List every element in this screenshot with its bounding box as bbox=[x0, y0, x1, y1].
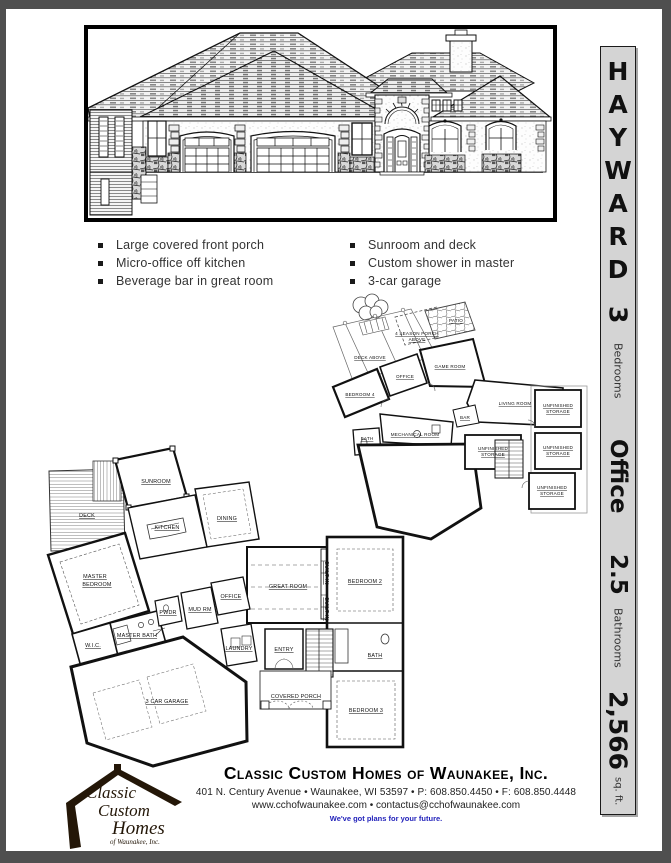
stairs-main bbox=[306, 629, 333, 677]
square-bullet-icon bbox=[350, 261, 355, 266]
dining-room bbox=[195, 482, 259, 547]
company-name: Classic Custom Homes of Waunakee, Inc. bbox=[176, 764, 596, 783]
front-elevation-frame bbox=[84, 25, 557, 222]
garage-door-1 bbox=[180, 132, 234, 172]
room-label: SUNROOM bbox=[141, 479, 171, 485]
feature-item: Micro-office off kitchen bbox=[98, 254, 273, 272]
keystone bbox=[398, 97, 406, 103]
room-label: BATH bbox=[368, 653, 383, 659]
feature-item: 3-car garage bbox=[350, 272, 514, 290]
brochure-page-background: { "sidebar": { "plan_letters": ["H","A",… bbox=[0, 0, 671, 863]
main-level-floor-plan: SUNROOM DECK KITCHEN DINING MASTER BEDRO… bbox=[35, 425, 405, 785]
left-window bbox=[146, 121, 168, 172]
room-label: DINING bbox=[217, 516, 237, 522]
arched-window-2 bbox=[482, 118, 521, 172]
tree-symbol bbox=[353, 294, 388, 320]
room-label: OFFICE bbox=[221, 594, 242, 600]
document-page: Large covered front porch Micro-office o… bbox=[6, 9, 662, 851]
feature-item: Beverage bar in great room bbox=[98, 272, 273, 290]
room-label: UNFINISHED bbox=[543, 403, 574, 408]
room-label: MASTER bbox=[83, 574, 107, 580]
room-label: BEDROOM 4 bbox=[345, 392, 375, 397]
bedrooms-count: 3 bbox=[604, 306, 633, 323]
room-label: BEDROOM bbox=[82, 582, 112, 588]
bathrooms-count: 2.5 bbox=[605, 554, 631, 595]
room-label: STORAGE bbox=[481, 452, 505, 457]
bathrooms-label: Bathrooms bbox=[612, 608, 625, 668]
room-label: LIVING ROOM bbox=[499, 401, 532, 406]
porch-column bbox=[323, 701, 331, 709]
room-label: ABOVE bbox=[409, 337, 426, 342]
entry-side-window bbox=[350, 123, 374, 172]
room-label: STORAGE bbox=[546, 451, 570, 456]
plan-title-sidebar: H A Y W A R D 3 Bedrooms Office 2.5 Bath… bbox=[600, 46, 636, 815]
feature-text: Sunroom and deck bbox=[368, 238, 476, 252]
room-label: PATIO bbox=[449, 318, 463, 323]
room-label: UNFINISHED bbox=[478, 446, 509, 451]
room-label: DECK bbox=[79, 513, 95, 519]
room-label: BAR bbox=[460, 415, 471, 420]
sqft-label: sq. ft. bbox=[613, 777, 624, 805]
plan-name-letter: A bbox=[601, 191, 635, 216]
room-label: MASTER BATH bbox=[117, 633, 157, 639]
front-elevation-drawing bbox=[88, 29, 553, 218]
room-label: BEDROOM 2 bbox=[348, 579, 382, 585]
plan-name-letter: R bbox=[601, 224, 635, 249]
square-bullet-icon bbox=[98, 261, 103, 266]
entry-tower bbox=[375, 95, 429, 175]
footer-contact-block: Classic Custom Homes of Waunakee, Inc. 4… bbox=[176, 764, 596, 823]
plan-name-letter: Y bbox=[601, 125, 635, 150]
feature-text: Large covered front porch bbox=[116, 238, 264, 252]
room-label: ENTRY bbox=[274, 647, 293, 653]
feature-column-right: Sunroom and deck Custom shower in master… bbox=[350, 236, 514, 290]
feature-text: Custom shower in master bbox=[368, 256, 514, 270]
plan-name-letter: W bbox=[601, 158, 635, 183]
room-label: OFFICE bbox=[396, 374, 414, 379]
chimney bbox=[446, 30, 476, 72]
square-bullet-icon bbox=[350, 243, 355, 248]
room-label: LAUNDRY bbox=[225, 646, 252, 652]
plan-name-letter: H bbox=[601, 59, 635, 84]
basement-window bbox=[101, 179, 109, 205]
room-label: COVERED PORCH bbox=[271, 694, 321, 700]
garage-door-2 bbox=[251, 132, 335, 173]
fascia-right bbox=[431, 117, 551, 121]
right-wing bbox=[327, 537, 403, 747]
room-label: MUD RM bbox=[188, 607, 212, 613]
room-label: DECK ABOVE bbox=[354, 355, 386, 360]
office-feature: Office bbox=[605, 439, 631, 513]
bedrooms-label: Bedrooms bbox=[612, 343, 625, 398]
arched-window-1 bbox=[425, 119, 465, 172]
room-label: BUILT-IN bbox=[323, 597, 329, 620]
room-label: UNFINISHED bbox=[543, 445, 574, 450]
square-bullet-icon bbox=[350, 279, 355, 284]
feature-item: Sunroom and deck bbox=[350, 236, 514, 254]
covered-porch bbox=[260, 671, 331, 709]
room-label: W.I.C. bbox=[85, 643, 101, 649]
room-label: 4 SEASON PORCH bbox=[395, 331, 439, 336]
laundry-room bbox=[221, 624, 257, 666]
logo-text-3: Homes bbox=[111, 818, 165, 839]
logo-text-1: Classic bbox=[86, 783, 137, 802]
room-label: STORAGE bbox=[546, 409, 570, 414]
room-label: KITCHEN bbox=[154, 525, 179, 531]
company-tagline: We've got plans for your future. bbox=[176, 814, 596, 823]
room-label: GREAT ROOM bbox=[269, 584, 308, 590]
square-bullet-icon bbox=[98, 279, 103, 284]
feature-text: 3-car garage bbox=[368, 274, 441, 288]
company-address: 401 N. Century Avenue • Waunakee, WI 535… bbox=[176, 787, 596, 798]
plan-name-letter: A bbox=[601, 92, 635, 117]
plan-name-letter: D bbox=[601, 257, 635, 282]
clerestory-windows bbox=[432, 100, 462, 111]
room-label: 3 CAR GARAGE bbox=[146, 699, 189, 705]
room-label: BUILT-IN bbox=[323, 561, 329, 584]
feature-item: Custom shower in master bbox=[350, 254, 514, 272]
room-label: STORAGE bbox=[540, 491, 564, 496]
feature-text: Beverage bar in great room bbox=[116, 274, 273, 288]
room-label: UNFINISHED bbox=[537, 485, 568, 490]
porch-column bbox=[261, 701, 269, 709]
feature-text: Micro-office off kitchen bbox=[116, 256, 245, 270]
logo-text-4: of Waunakee, Inc. bbox=[110, 838, 160, 846]
room-label: BEDROOM 3 bbox=[349, 708, 383, 714]
room-label: GAME ROOM bbox=[435, 364, 466, 369]
feature-column-left: Large covered front porch Micro-office o… bbox=[98, 236, 273, 290]
feature-item: Large covered front porch bbox=[98, 236, 273, 254]
front-door bbox=[380, 129, 424, 175]
square-bullet-icon bbox=[98, 243, 103, 248]
company-web-email: www.cchofwaunakee.com • contactus@cchofw… bbox=[176, 800, 596, 811]
room-label: PWDR bbox=[159, 610, 176, 616]
sqft-value: 2,566 bbox=[604, 691, 633, 770]
